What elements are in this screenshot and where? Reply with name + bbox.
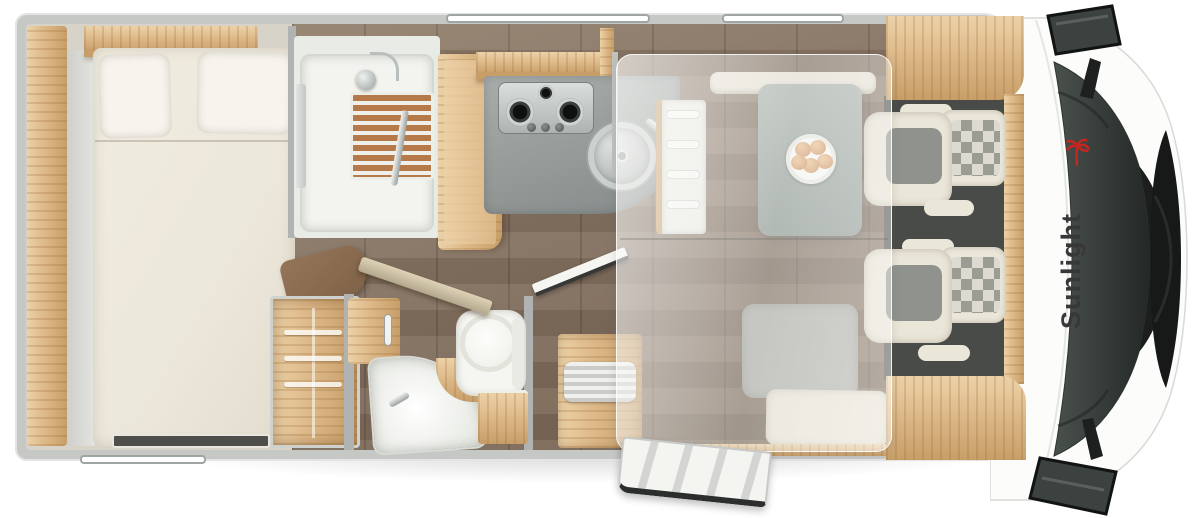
seat-cushion-inset [886, 265, 942, 321]
vanity-cabinet [348, 298, 400, 364]
drop-down-bed-overlay [616, 54, 892, 452]
shower-head [356, 70, 376, 90]
seat-cushion-inset [886, 128, 942, 184]
vanity-handle [384, 314, 392, 346]
wardrobe-rail [312, 308, 315, 438]
brand-logo: Sunlight [1056, 138, 1102, 382]
clothes-hanger [284, 330, 342, 335]
hob-burner-left [506, 98, 534, 126]
bed-side-frame [67, 50, 95, 446]
window-rear-bottom [80, 455, 206, 464]
clothes-hanger [284, 356, 342, 361]
cab-overhead-panel [886, 16, 1024, 100]
seat-headrest-checker [950, 120, 1000, 176]
bed-foot-vent [112, 434, 270, 448]
hob-knob [527, 123, 536, 132]
seat-armrest [918, 345, 970, 361]
floorplan-canvas: Sunlight [0, 0, 1200, 518]
hob-knob [555, 123, 564, 132]
logo-text: Sunlight [1056, 164, 1087, 378]
seat-armrest [924, 200, 974, 216]
entry-step-box [478, 390, 528, 444]
hob-burner-small [538, 85, 554, 101]
shower-glass-panel [296, 84, 306, 188]
hob-burner-right [556, 98, 584, 126]
pillow-left [98, 53, 172, 139]
clothes-hanger [284, 382, 342, 387]
cab-dash-panel [886, 376, 1026, 460]
toilet-bowl [460, 314, 518, 372]
seat-headrest-checker [950, 257, 1000, 313]
palm-icon [1064, 138, 1092, 166]
duvet-seam [95, 140, 293, 142]
kitchen-overhead-shelf [476, 52, 616, 74]
window-top-short [722, 14, 844, 23]
hob-knob [541, 123, 550, 132]
rear-wall-shelf [27, 26, 67, 446]
pillow-right [196, 51, 293, 135]
window-top-long [446, 14, 650, 23]
toilet-seatback [512, 318, 524, 388]
cab-side-band [1004, 94, 1024, 384]
drop-down-bed-seam [620, 238, 888, 240]
